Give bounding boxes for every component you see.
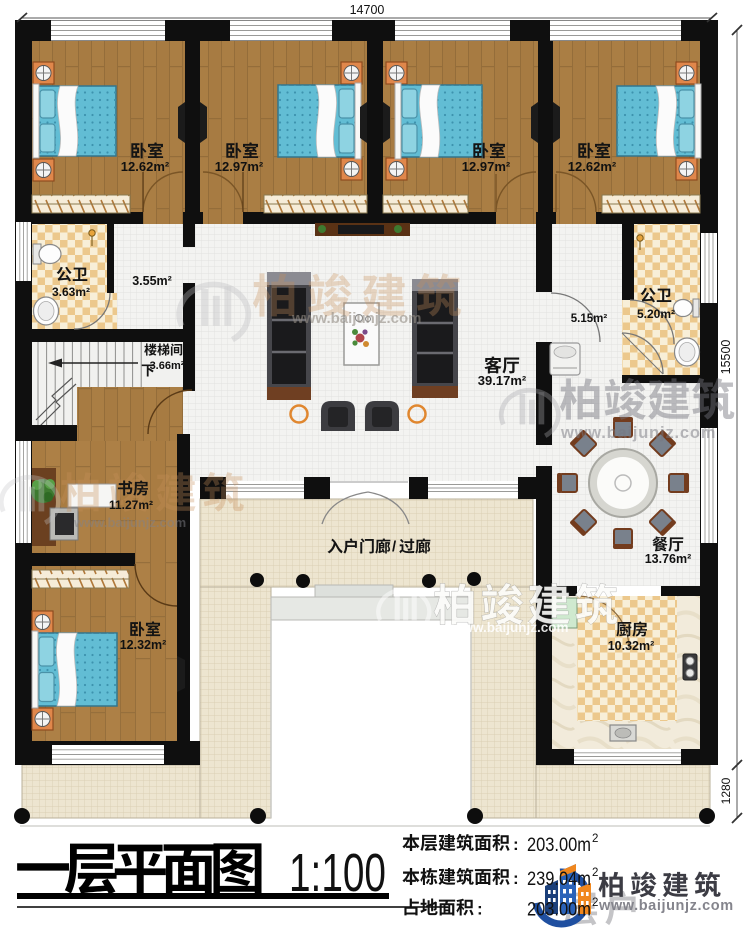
svg-text:www.baijunjz.com: www.baijunjz.com	[560, 424, 716, 442]
svg-text:5.20m²: 5.20m²	[637, 307, 675, 321]
svg-text:14700: 14700	[350, 3, 385, 17]
svg-text:www.baijunjz.com: www.baijunjz.com	[73, 515, 186, 530]
svg-text:13.76m²: 13.76m²	[645, 552, 692, 566]
svg-text:www.baijunjz.com: www.baijunjz.com	[291, 310, 421, 327]
svg-text:11.27m²: 11.27m²	[109, 498, 153, 512]
svg-text:www.baijunjz.com: www.baijunjz.com	[598, 898, 734, 914]
svg-text:12.32m²: 12.32m²	[120, 638, 167, 652]
svg-text:5.15m²: 5.15m²	[571, 313, 608, 325]
svg-text:3.55m²: 3.55m²	[132, 274, 172, 288]
svg-text::: :	[513, 869, 519, 888]
svg-text:2: 2	[592, 833, 598, 845]
svg-text:239.04m: 239.04m	[527, 868, 591, 890]
svg-text::: :	[477, 900, 483, 919]
svg-text:2: 2	[592, 897, 598, 909]
svg-text::: :	[513, 835, 519, 854]
svg-text:12.62m²: 12.62m²	[121, 159, 170, 174]
svg-text:2: 2	[592, 867, 598, 879]
svg-text:15500: 15500	[719, 340, 733, 375]
svg-text:39.17m²: 39.17m²	[478, 373, 527, 388]
svg-text:12.97m²: 12.97m²	[462, 159, 511, 174]
svg-text:203.00m: 203.00m	[527, 899, 591, 921]
svg-text:3.66m²: 3.66m²	[150, 360, 185, 372]
svg-text:12.62m²: 12.62m²	[568, 159, 617, 174]
svg-text:1280: 1280	[719, 777, 733, 804]
svg-text:3.63m²: 3.63m²	[52, 285, 90, 299]
svg-text:www.baijunjz.com: www.baijunjz.com	[451, 620, 569, 635]
svg-text:10.32m²: 10.32m²	[608, 639, 655, 653]
svg-text:203.00m: 203.00m	[527, 834, 591, 856]
svg-text:12.97m²: 12.97m²	[215, 159, 264, 174]
